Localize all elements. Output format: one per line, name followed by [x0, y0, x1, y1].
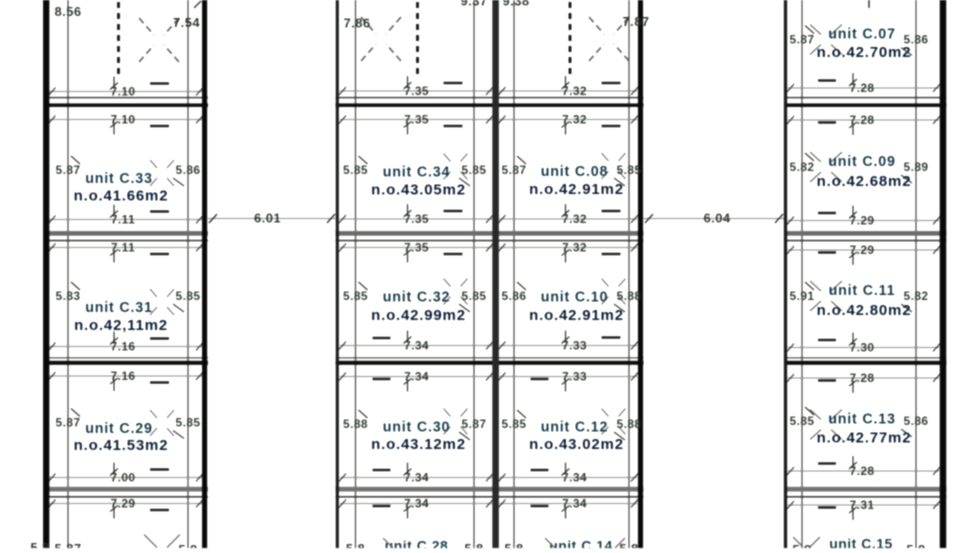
svg-text:7.10: 7.10 — [111, 85, 136, 99]
svg-text:5.88: 5.88 — [617, 289, 642, 303]
svg-text:n.o.42.99m2: n.o.42.99m2 — [371, 307, 466, 324]
svg-text:7.34: 7.34 — [404, 370, 429, 384]
svg-text:7.00: 7.00 — [111, 471, 136, 485]
svg-text:unit C.14: unit C.14 — [549, 538, 613, 549]
svg-text:5.86: 5.86 — [904, 414, 929, 428]
svg-text:5.87: 5.87 — [462, 417, 487, 431]
svg-text:5.86: 5.86 — [176, 163, 201, 177]
svg-text:n.o.41.66m2: n.o.41.66m2 — [74, 188, 169, 205]
svg-text:5.82: 5.82 — [790, 160, 815, 174]
svg-text:n.o.42.68m2: n.o.42.68m2 — [817, 173, 912, 190]
svg-text:6.04: 6.04 — [704, 211, 731, 226]
svg-text:5.85: 5.85 — [176, 416, 201, 430]
svg-text:9.37: 9.37 — [461, 0, 488, 9]
svg-text:5.8: 5.8 — [464, 541, 483, 548]
svg-text:unit C.12: unit C.12 — [541, 419, 609, 435]
svg-text:7.10: 7.10 — [111, 113, 136, 127]
svg-text:unit C.10: unit C.10 — [541, 289, 609, 305]
svg-text:7.32: 7.32 — [562, 241, 587, 255]
svg-text:7.35: 7.35 — [404, 241, 429, 255]
svg-text:7.34: 7.34 — [404, 339, 429, 353]
svg-text:unit C.28: unit C.28 — [385, 538, 449, 549]
svg-text:5.85: 5.85 — [462, 163, 487, 177]
svg-text:7.11: 7.11 — [111, 213, 135, 227]
svg-text:5.88: 5.88 — [617, 417, 642, 431]
svg-text:7.33: 7.33 — [562, 370, 587, 384]
svg-text:unit C.34: unit C.34 — [383, 164, 451, 180]
svg-text:unit C.08: unit C.08 — [541, 164, 609, 180]
svg-text:n.o.43.05m2: n.o.43.05m2 — [371, 182, 466, 199]
svg-text:5.87: 5.87 — [790, 33, 815, 47]
svg-text:7.35: 7.35 — [404, 113, 429, 127]
svg-text:unit C.07: unit C.07 — [828, 26, 896, 42]
svg-text:7.16: 7.16 — [111, 340, 136, 354]
svg-text:7.28: 7.28 — [850, 113, 875, 127]
svg-text:5.8: 5.8 — [906, 542, 925, 548]
svg-text:5.87: 5.87 — [56, 163, 81, 177]
svg-text:7.32: 7.32 — [562, 113, 587, 127]
svg-text:unit C.13: unit C.13 — [828, 411, 896, 427]
svg-text:5.86: 5.86 — [904, 33, 929, 47]
svg-text:5.8: 5.8 — [30, 540, 49, 548]
svg-text:7.34: 7.34 — [404, 471, 429, 485]
svg-text:7.33: 7.33 — [562, 339, 587, 353]
svg-text:5.8: 5.8 — [178, 542, 197, 548]
svg-text:7.32: 7.32 — [562, 212, 587, 226]
svg-text:5.82: 5.82 — [904, 289, 929, 303]
svg-text:7.28: 7.28 — [850, 371, 875, 385]
svg-text:7.29: 7.29 — [850, 214, 875, 228]
svg-text:5.85: 5.85 — [462, 289, 487, 303]
svg-text:5.91: 5.91 — [790, 289, 815, 303]
svg-text:7.11: 7.11 — [111, 241, 135, 255]
svg-text:7.16: 7.16 — [111, 369, 136, 383]
svg-text:5.86: 5.86 — [502, 289, 527, 303]
svg-text:n.o.42.80m2: n.o.42.80m2 — [817, 302, 912, 319]
svg-text:unit C.11: unit C.11 — [829, 283, 896, 299]
svg-text:n.o.42.77m2: n.o.42.77m2 — [817, 430, 912, 447]
svg-text:5.88: 5.88 — [343, 417, 368, 431]
svg-text:unit C.15: unit C.15 — [829, 536, 893, 549]
svg-text:5.8: 5.8 — [504, 541, 523, 548]
svg-text:5.89: 5.89 — [904, 160, 929, 174]
svg-text:n.o.43.02m2: n.o.43.02m2 — [529, 436, 624, 453]
svg-text:unit C.33: unit C.33 — [85, 171, 153, 187]
svg-text:7.34: 7.34 — [562, 497, 587, 511]
svg-text:n.o.43.12m2: n.o.43.12m2 — [371, 436, 466, 453]
svg-text:5.85: 5.85 — [790, 414, 815, 428]
svg-text:5.85: 5.85 — [343, 163, 368, 177]
svg-text:7.29: 7.29 — [850, 243, 875, 257]
svg-text:5.85: 5.85 — [617, 163, 642, 177]
svg-text:5.87: 5.87 — [55, 541, 82, 548]
svg-text:7.86: 7.86 — [344, 16, 371, 31]
svg-text:n.o.41.53m2: n.o.41.53m2 — [74, 437, 169, 454]
svg-text:5.8: 5.8 — [619, 541, 638, 548]
svg-text:7.87: 7.87 — [623, 14, 650, 29]
svg-text:n.o.42,11m2: n.o.42,11m2 — [74, 317, 168, 334]
svg-text:7.54: 7.54 — [173, 15, 200, 30]
svg-text:unit C.29: unit C.29 — [85, 421, 153, 437]
svg-text:7.34: 7.34 — [404, 497, 429, 511]
svg-text:n.o.42.91m2: n.o.42.91m2 — [529, 181, 624, 198]
svg-text:7.30: 7.30 — [850, 341, 875, 355]
svg-text:9.38: 9.38 — [503, 0, 530, 9]
svg-text:5.8: 5.8 — [346, 541, 365, 548]
svg-text:unit C.30: unit C.30 — [383, 419, 451, 435]
svg-text:7.28: 7.28 — [850, 464, 875, 478]
svg-text:6.01: 6.01 — [254, 211, 281, 226]
svg-text:7.28: 7.28 — [850, 81, 875, 95]
svg-text:7.34: 7.34 — [562, 471, 587, 485]
svg-text:7.32: 7.32 — [562, 84, 587, 98]
svg-text:8.56: 8.56 — [55, 4, 82, 19]
svg-text:n.o.42.70m2: n.o.42.70m2 — [817, 44, 912, 61]
svg-text:7.35: 7.35 — [404, 84, 429, 98]
svg-text:5.87: 5.87 — [56, 416, 81, 430]
svg-text:7.31: 7.31 — [850, 498, 875, 512]
svg-text:5.85: 5.85 — [176, 289, 201, 303]
svg-text:unit C.32: unit C.32 — [383, 289, 451, 305]
svg-text:5.87: 5.87 — [502, 163, 527, 177]
svg-text:5.83: 5.83 — [56, 289, 81, 303]
svg-text:unit C.09: unit C.09 — [828, 154, 896, 170]
svg-text:7.35: 7.35 — [404, 212, 429, 226]
svg-text:unit C.31: unit C.31 — [85, 300, 153, 316]
svg-text:n.o.42.91m2: n.o.42.91m2 — [529, 307, 624, 324]
svg-text:7.29: 7.29 — [111, 497, 136, 511]
svg-text:5.85: 5.85 — [502, 417, 527, 431]
svg-text:5.85: 5.85 — [343, 289, 368, 303]
